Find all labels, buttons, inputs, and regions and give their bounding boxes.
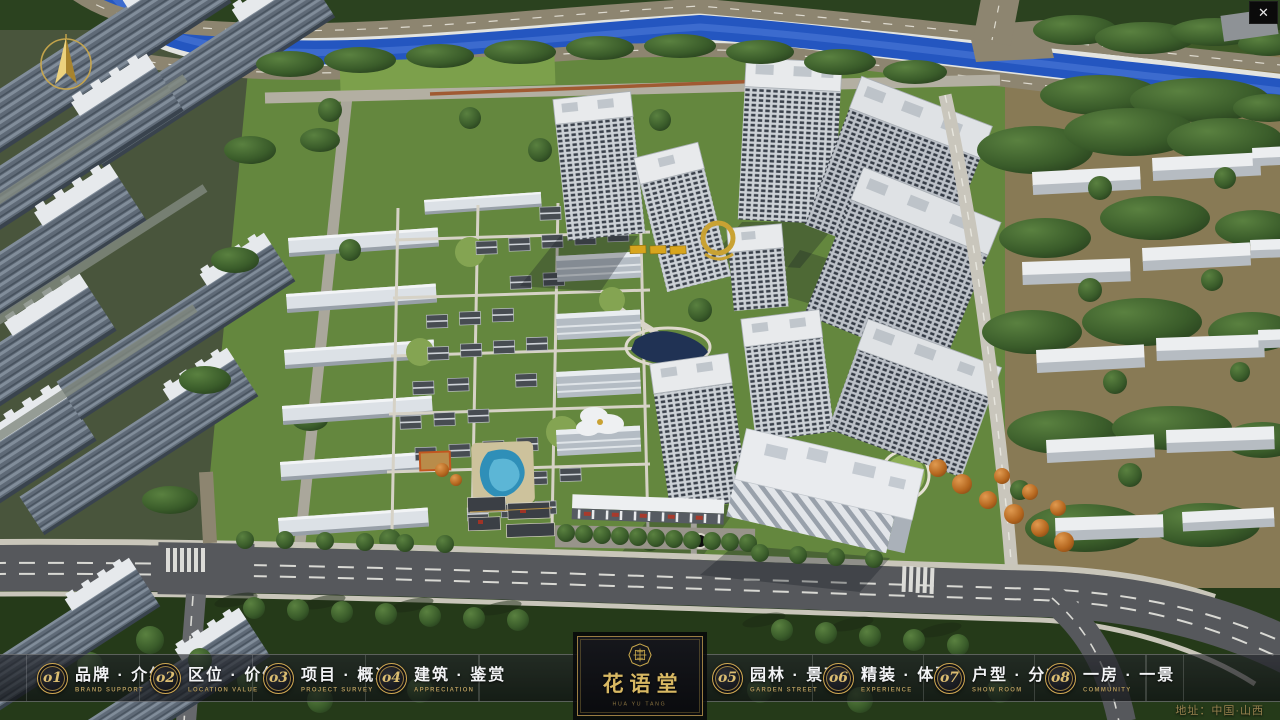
nav-item-project-overview[interactable]: o3 项目 · 概况 PROJECT SURVEY [253,655,366,701]
nav-item-floorplan-distribution[interactable]: o7 户型 · 分布 SHOW ROOM [924,655,1035,701]
nav-item-sublabel: BRAND SUPPORT [75,686,117,693]
map-viewport[interactable] [0,0,1280,720]
nav-item-sublabel: SHOW ROOM [972,686,1013,693]
nav-number-badge: o8 [1045,663,1076,694]
nav-number-badge: o6 [823,663,854,694]
nav-item-label: 精装 · 体验 [861,661,923,685]
nav-number-badge: o5 [712,663,743,694]
nav-item-label: 建筑 · 鉴赏 [414,661,478,685]
nav-divider [0,655,27,701]
nav-item-interior-experience[interactable]: o6 精装 · 体验 EXPERIENCE [813,655,924,701]
nav-number-badge: o7 [934,663,965,694]
sales-app-window: ✕ o1 品牌 · 介绍 BRAND SUPPORT o2 区位 · 价值 LO… [0,0,1280,720]
nav-item-sublabel: APPRECIATION [414,686,456,693]
nav-item-label: 项目 · 概况 [301,661,365,685]
nav-item-architecture[interactable]: o4 建筑 · 鉴赏 APPRECIATION [366,655,479,701]
project-title: 花语堂 [603,668,684,698]
close-icon: ✕ [1258,5,1269,21]
seal-emblem-icon [628,643,652,667]
nav-number-badge: o4 [376,663,407,694]
address-text: 地址：中国·山西 [1175,702,1264,718]
project-subtitle: HUA YU TANG [613,701,667,707]
nav-number-badge: o2 [150,663,181,694]
close-button[interactable]: ✕ [1249,1,1278,24]
nav-item-sublabel: EXPERIENCE [861,686,902,693]
nav-number-badge: o1 [37,663,68,694]
nav-bar-right: o5 园林 · 景观 GARDEN STREET o6 精装 · 体验 EXPE… [702,654,1280,702]
nav-item-location-value[interactable]: o2 区位 · 价值 LOCATION VALUE [140,655,253,701]
nav-divider [1146,655,1183,701]
nav-divider [1183,655,1280,701]
nav-item-sublabel: PROJECT SURVEY [301,686,343,693]
nav-item-garden-landscape[interactable]: o5 园林 · 景观 GARDEN STREET [702,655,813,701]
nav-item-sublabel: LOCATION VALUE [188,686,230,693]
nav-item-sublabel: COMMUNITY [1083,686,1124,693]
nav-bar-left: o1 品牌 · 介绍 BRAND SUPPORT o2 区位 · 价值 LOCA… [0,654,578,702]
nav-item-sublabel: GARDEN STREET [750,686,791,693]
project-logo-box: 花语堂 HUA YU TANG [577,636,703,716]
nav-item-label: 品牌 · 介绍 [75,661,139,685]
nav-item-label: 园林 · 景观 [750,661,812,685]
nav-item-label: 一房 · 一景 [1083,661,1145,685]
nav-divider [479,655,578,701]
nav-item-label: 户型 · 分布 [972,661,1034,685]
nav-number-badge: o3 [263,663,294,694]
nav-item-label: 区位 · 价值 [188,661,252,685]
nav-item-room-view[interactable]: o8 一房 · 一景 COMMUNITY [1035,655,1146,701]
nav-item-brand-intro[interactable]: o1 品牌 · 介绍 BRAND SUPPORT [27,655,140,701]
